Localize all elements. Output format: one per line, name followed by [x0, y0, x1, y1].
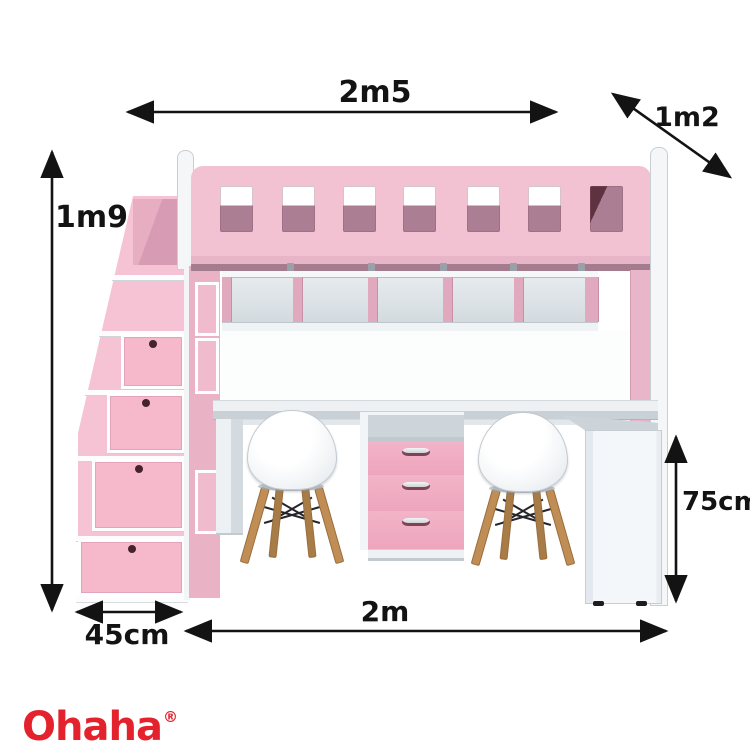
brand-logo-text: Ohaha — [22, 704, 162, 750]
product-image: 2m5 1m2 1m9 75cm 45cm 2m Ohaha® — [0, 0, 750, 750]
dimension-label-stair-width: 45cm — [82, 621, 172, 649]
dimension-label-overall-depth: 1m2 — [652, 104, 722, 131]
registered-mark: ® — [163, 708, 177, 726]
brand-logo: Ohaha® — [22, 704, 176, 750]
dimension-label-desk-height: 75cm — [682, 489, 750, 515]
dimension-label-desk-width: 2m — [345, 598, 425, 626]
dimension-label-overall-width: 2m5 — [330, 78, 420, 108]
dimension-label-overall-height: 1m9 — [55, 203, 115, 233]
